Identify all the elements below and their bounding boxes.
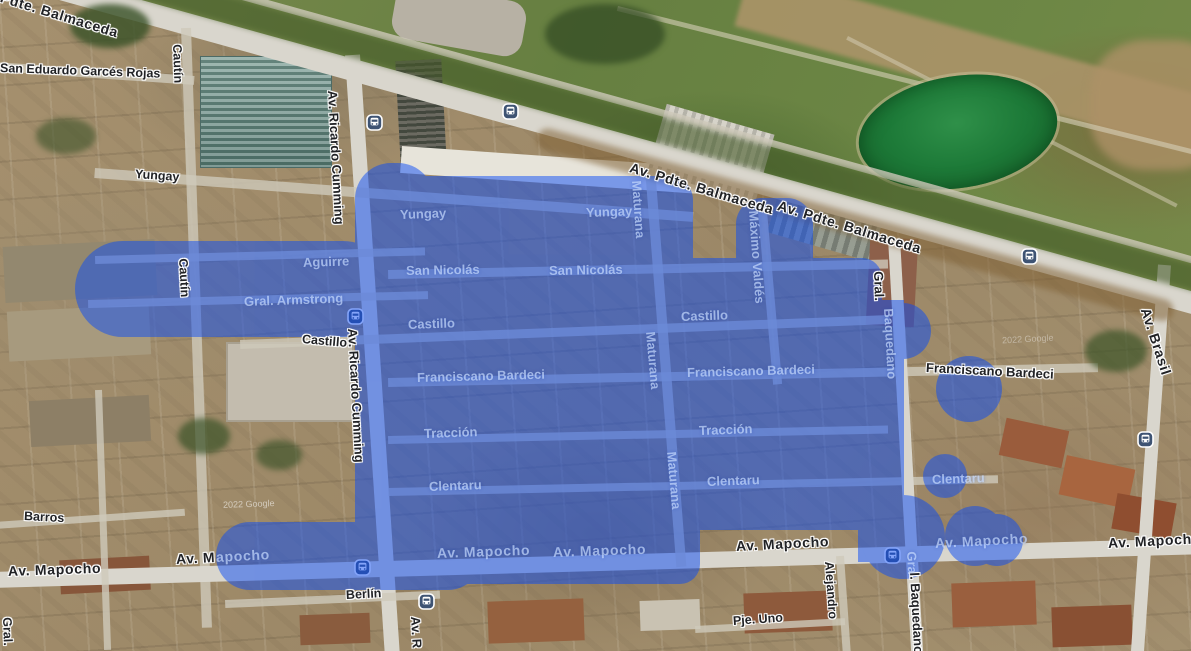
street-label-yungay: Yungay: [586, 203, 633, 220]
street-label-traccion: Tracción: [424, 424, 478, 441]
street-label-barros: Barros: [24, 509, 65, 526]
street-label-san-nicolas: San Nicolás: [549, 262, 623, 278]
street-label-aguirre: Aguirre: [303, 253, 350, 270]
street-label-berlin: Berlín: [346, 586, 382, 603]
street-label-av-mapocho-part: apocho: [216, 547, 271, 565]
street-label-yungay: Yungay: [134, 167, 179, 185]
street-label-clentaru: Clentaru: [707, 472, 760, 489]
street-label-av-ricardo-cumming-partial: Av. R: [408, 616, 425, 649]
street-label-yungay: Yungay: [400, 205, 447, 222]
street-label-av-mapocho-part: Av. M: [176, 550, 216, 567]
street-label-castillo: Castillo: [408, 315, 455, 332]
street-label-clentaru: Clentaru: [429, 477, 482, 494]
street-label-clentaru: Clentaru: [932, 470, 985, 487]
street-label-castillo: Castillo: [681, 307, 728, 324]
street-label-san-nicolas: San Nicolás: [406, 262, 480, 278]
street-label-cautin: Cautín: [169, 44, 185, 83]
street-label-cautin: Cautín: [175, 258, 192, 298]
map-canvas[interactable]: 2022 Google 2022 Google: [0, 0, 1191, 651]
street-label-gral-baquedano-part: Gra: [904, 551, 920, 574]
street-label-traccion: Tracción: [699, 421, 753, 438]
street-label-gral-partial: Gral.: [0, 617, 15, 646]
street-label-gral-baquedano-part: Gral.: [871, 271, 887, 301]
